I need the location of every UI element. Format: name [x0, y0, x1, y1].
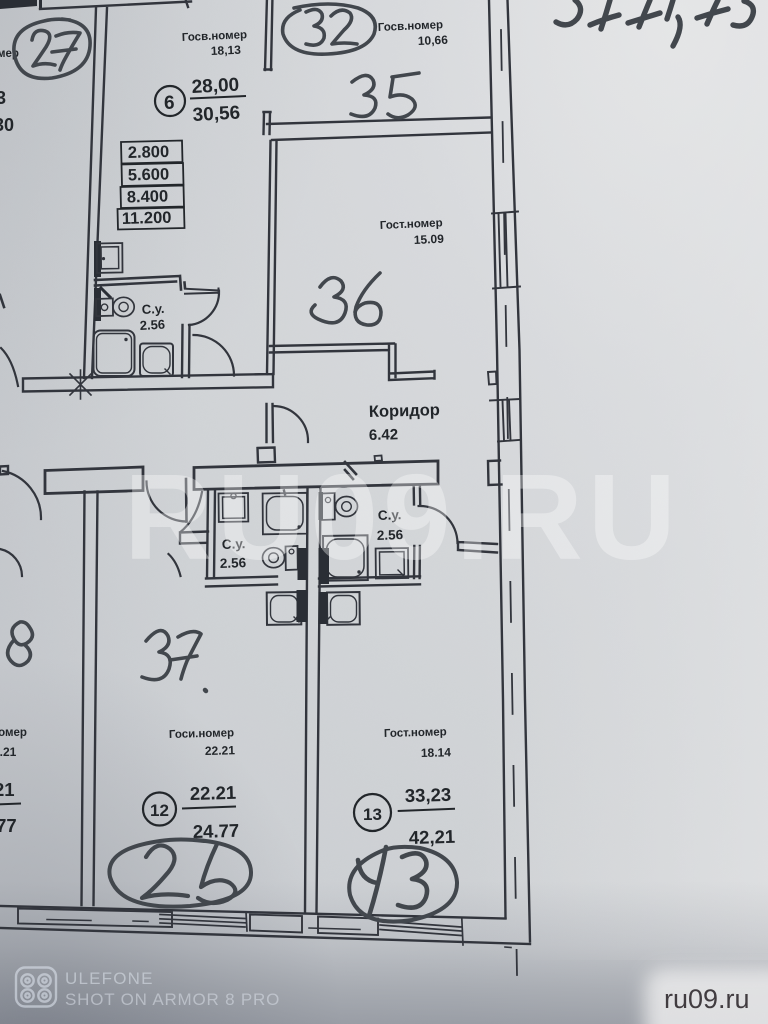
svg-text:2.56: 2.56: [139, 317, 165, 333]
svg-text:ULEFONE: ULEFONE: [65, 969, 154, 988]
svg-text:Госи.номер: Госи.номер: [169, 727, 235, 741]
svg-text:15.09: 15.09: [414, 232, 445, 247]
svg-text:С.у.: С.у.: [141, 301, 164, 317]
svg-text:8.400: 8.400: [127, 187, 169, 206]
svg-text:42,21: 42,21: [409, 826, 456, 848]
svg-text:5.600: 5.600: [128, 165, 170, 184]
svg-text:.77: .77: [0, 815, 17, 836]
svg-text:28,00: 28,00: [191, 75, 240, 98]
svg-text:2.21: 2.21: [0, 745, 17, 759]
svg-text:3: 3: [0, 88, 6, 108]
svg-text:Гост.номер: Гост.номер: [384, 726, 447, 740]
svg-text:6.42: 6.42: [369, 426, 399, 444]
svg-text:30: 30: [0, 115, 14, 135]
svg-text:6: 6: [164, 93, 175, 114]
svg-text:21: 21: [0, 779, 15, 800]
svg-text:22.21: 22.21: [190, 782, 237, 804]
svg-text:ru09.ru: ru09.ru: [664, 984, 750, 1014]
svg-text:2.800: 2.800: [128, 143, 170, 162]
svg-text:11.200: 11.200: [122, 209, 172, 228]
svg-text:SHOT ON ARMOR 8 PRO: SHOT ON ARMOR 8 PRO: [65, 990, 280, 1009]
svg-text:12: 12: [150, 801, 169, 820]
svg-text:30,56: 30,56: [192, 103, 241, 126]
svg-text:18,13: 18,13: [211, 43, 242, 58]
svg-text:22.21: 22.21: [205, 743, 236, 758]
svg-text:18.14: 18.14: [421, 745, 452, 760]
svg-text:RU09.RU: RU09.RU: [124, 449, 681, 585]
svg-text:.номер: .номер: [0, 727, 27, 739]
svg-text:13: 13: [363, 805, 382, 824]
svg-text:Коридор: Коридор: [369, 401, 440, 421]
svg-text:10,66: 10,66: [418, 33, 449, 48]
svg-text:33,23: 33,23: [405, 784, 452, 806]
